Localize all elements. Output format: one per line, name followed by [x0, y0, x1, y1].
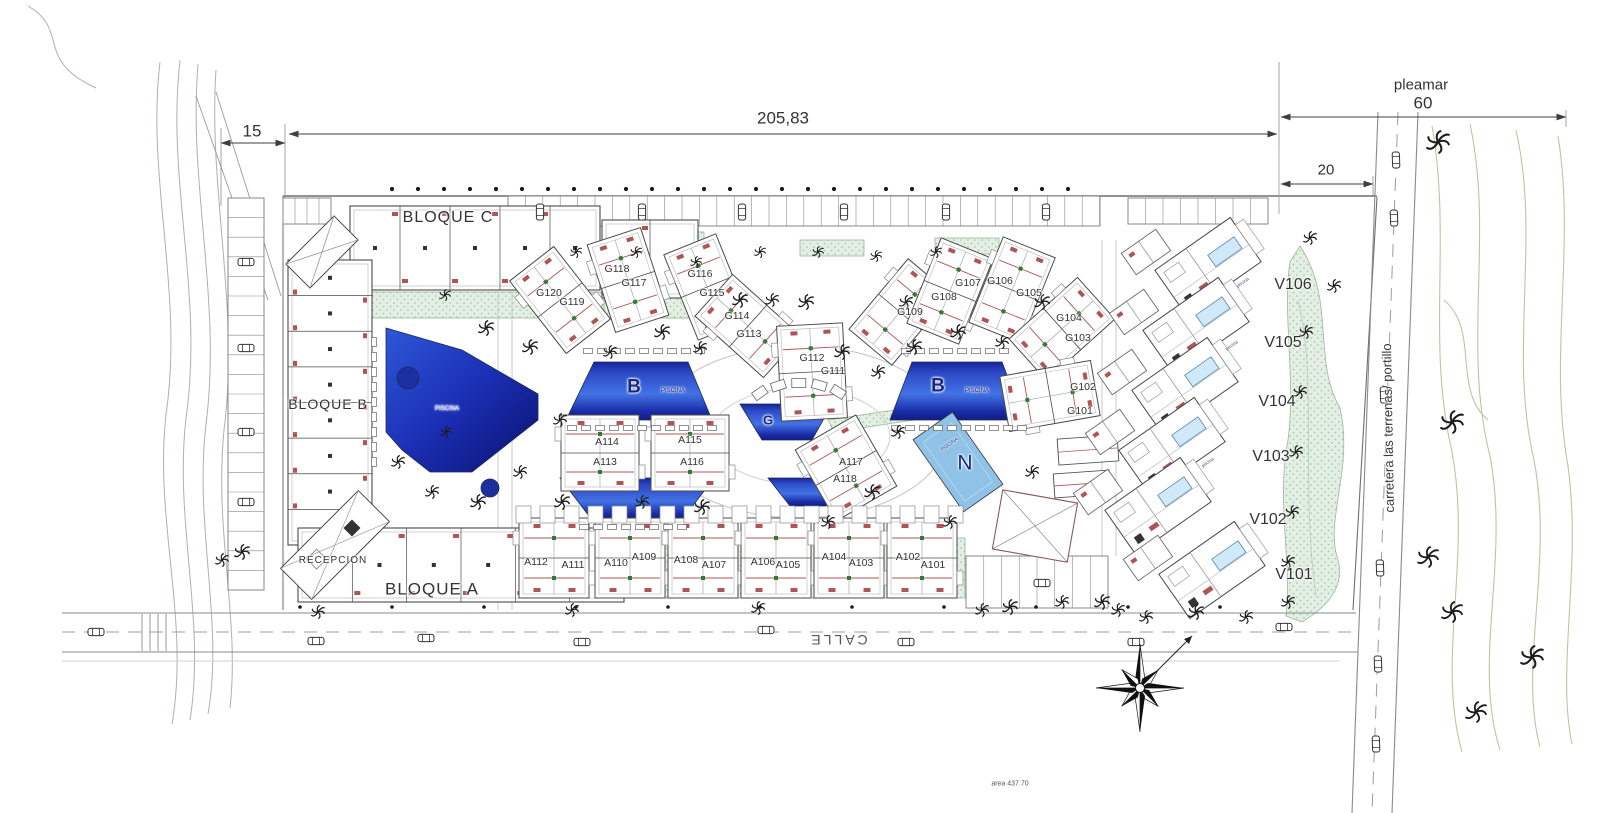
sun-lounger	[930, 349, 939, 354]
compass-rose	[1096, 636, 1192, 732]
terrace	[756, 506, 771, 523]
palm-tree-icon	[871, 251, 882, 262]
sun-lounger	[372, 443, 377, 452]
car-icon	[1374, 656, 1382, 672]
terrace	[612, 506, 627, 523]
sun-lounger	[708, 426, 717, 431]
car-icon	[418, 634, 434, 641]
car-icon	[758, 626, 774, 633]
palm-tree-icon	[1441, 411, 1463, 433]
car-icon	[1276, 623, 1292, 630]
car-icon	[898, 638, 914, 645]
sun-lounger	[568, 426, 577, 431]
sun-lounger	[682, 349, 691, 354]
parking-corner-topleft	[283, 198, 331, 224]
spa-circle	[481, 479, 499, 497]
sun-lounger	[372, 353, 377, 362]
terrace	[828, 506, 843, 523]
sun-lounger	[640, 349, 649, 354]
car-icon	[840, 204, 847, 220]
sun-lounger	[622, 525, 631, 530]
car-icon	[638, 204, 645, 220]
car-icon	[1128, 638, 1144, 645]
palm-tree-icon	[1418, 547, 1438, 567]
sun-lounger	[594, 525, 603, 530]
car-icon	[88, 628, 104, 635]
palm-tree-icon	[471, 495, 485, 509]
sun-lounger	[972, 349, 981, 354]
beach-contours	[1432, 124, 1572, 752]
terrace	[900, 506, 915, 523]
palm-tree-icon	[1521, 646, 1543, 668]
parking-row-topright	[1128, 198, 1268, 224]
sun-lounger	[668, 349, 677, 354]
sun-lounger	[652, 426, 661, 431]
palm-tree-icon	[1328, 280, 1341, 293]
dimension-lines	[221, 62, 1566, 206]
car-icon	[574, 638, 590, 645]
unit-building	[808, 518, 890, 598]
palm-tree-icon	[1304, 232, 1317, 245]
palm-tree-icon	[604, 346, 617, 359]
sun-lounger	[920, 426, 929, 431]
pergola	[792, 378, 806, 387]
palm-tree-icon	[312, 606, 325, 619]
sun-lounger	[372, 398, 377, 407]
unit-building	[735, 518, 817, 598]
sun-lounger	[610, 426, 619, 431]
car-icon	[942, 204, 949, 220]
car-icon	[238, 428, 254, 435]
sun-lounger	[372, 458, 377, 467]
palm-tree-icon	[755, 247, 766, 258]
sun-lounger	[962, 426, 971, 431]
palm-tree-icon	[392, 456, 405, 469]
villa	[1159, 516, 1274, 619]
sun-lounger	[636, 525, 645, 530]
terrace	[516, 506, 531, 523]
palm-tree-icon	[426, 486, 439, 499]
car-icon	[308, 637, 324, 644]
sun-lounger	[906, 426, 915, 431]
sun-lounger	[934, 426, 943, 431]
terrace	[780, 506, 795, 523]
car-icon	[238, 498, 254, 505]
palm-tree-icon	[523, 340, 537, 354]
palm-tree-icon	[655, 325, 669, 339]
car-icon	[536, 204, 543, 220]
sun-lounger	[372, 428, 377, 437]
sun-lounger	[1004, 426, 1013, 431]
sun-lounger	[1000, 349, 1009, 354]
sun-lounger	[650, 525, 659, 530]
terrace	[660, 506, 675, 523]
car-icon	[1392, 152, 1400, 168]
car-icon	[1380, 387, 1388, 403]
terrace	[876, 506, 891, 523]
unit-building	[662, 518, 744, 598]
palm-tree-icon	[566, 604, 579, 617]
car-icon	[1034, 579, 1050, 586]
sun-lounger	[990, 426, 999, 431]
pergola	[752, 385, 769, 400]
sun-lounger	[638, 426, 647, 431]
sun-lounger	[580, 525, 589, 530]
sun-lounger	[958, 349, 967, 354]
sun-lounger	[608, 525, 617, 530]
car-icon	[1390, 210, 1398, 226]
service-building	[992, 490, 1077, 562]
car-icon	[1376, 560, 1384, 576]
palm-tree-icon	[752, 602, 765, 615]
main-pool	[386, 328, 538, 472]
palm-tree-icon	[1112, 604, 1125, 617]
compass-rose	[1096, 636, 1192, 732]
sun-lounger	[976, 426, 985, 431]
sun-lounger	[944, 349, 953, 354]
sun-lounger	[678, 525, 687, 530]
palm-tree-icon	[766, 294, 779, 307]
sun-lounger	[372, 368, 377, 377]
palm-tree-icon	[1427, 131, 1449, 153]
terrace	[636, 506, 651, 523]
palm-tree-icon	[996, 336, 1009, 349]
terrace	[924, 506, 939, 523]
sun-lounger	[654, 349, 663, 354]
pool-b-left	[566, 362, 712, 420]
terrace	[852, 506, 867, 523]
palm-tree-icon	[1026, 466, 1039, 479]
palm-tree-icon	[514, 466, 527, 479]
car-icon	[238, 258, 254, 265]
sun-lounger	[582, 426, 591, 431]
sun-lounger	[694, 426, 703, 431]
car-icon	[738, 204, 745, 220]
sun-lounger	[986, 349, 995, 354]
sun-lounger	[948, 426, 957, 431]
sun-lounger	[372, 338, 377, 347]
spa-circle	[397, 367, 419, 389]
parking-strip-left	[228, 198, 264, 590]
palm-tree-icon	[799, 295, 813, 309]
palm-tree-icon	[479, 321, 493, 335]
car-icon	[1042, 204, 1049, 220]
sun-lounger	[664, 525, 673, 530]
sun-lounger	[372, 413, 377, 422]
terrace	[684, 506, 699, 523]
palm-tree-icon	[1442, 602, 1462, 622]
terrace	[588, 506, 603, 523]
sun-lounger	[666, 426, 675, 431]
site-plan-page: 15205,83pleamar6020BLOQUE CBLOQUE BBLOQU…	[0, 0, 1600, 813]
terrace	[804, 506, 819, 523]
palm-tree-icon	[695, 500, 709, 514]
car-icon	[238, 344, 254, 351]
sun-lounger	[626, 349, 635, 354]
terrace	[564, 506, 579, 523]
terrace	[732, 506, 747, 523]
sun-lounger	[584, 349, 593, 354]
sun-lounger	[1018, 426, 1027, 431]
unit-building	[771, 323, 854, 422]
unit-building	[513, 518, 595, 598]
palm-tree-icon	[1466, 702, 1486, 722]
unit-building	[881, 518, 963, 598]
sun-lounger	[680, 426, 689, 431]
terrace	[708, 506, 723, 523]
palm-tree-icon	[872, 366, 885, 379]
sun-lounger	[624, 426, 633, 431]
unit-building	[589, 518, 671, 598]
terrace	[540, 506, 555, 523]
sun-lounger	[372, 383, 377, 392]
car-icon	[1372, 736, 1380, 752]
site-plan-drawing	[0, 0, 1600, 813]
sun-lounger	[596, 426, 605, 431]
